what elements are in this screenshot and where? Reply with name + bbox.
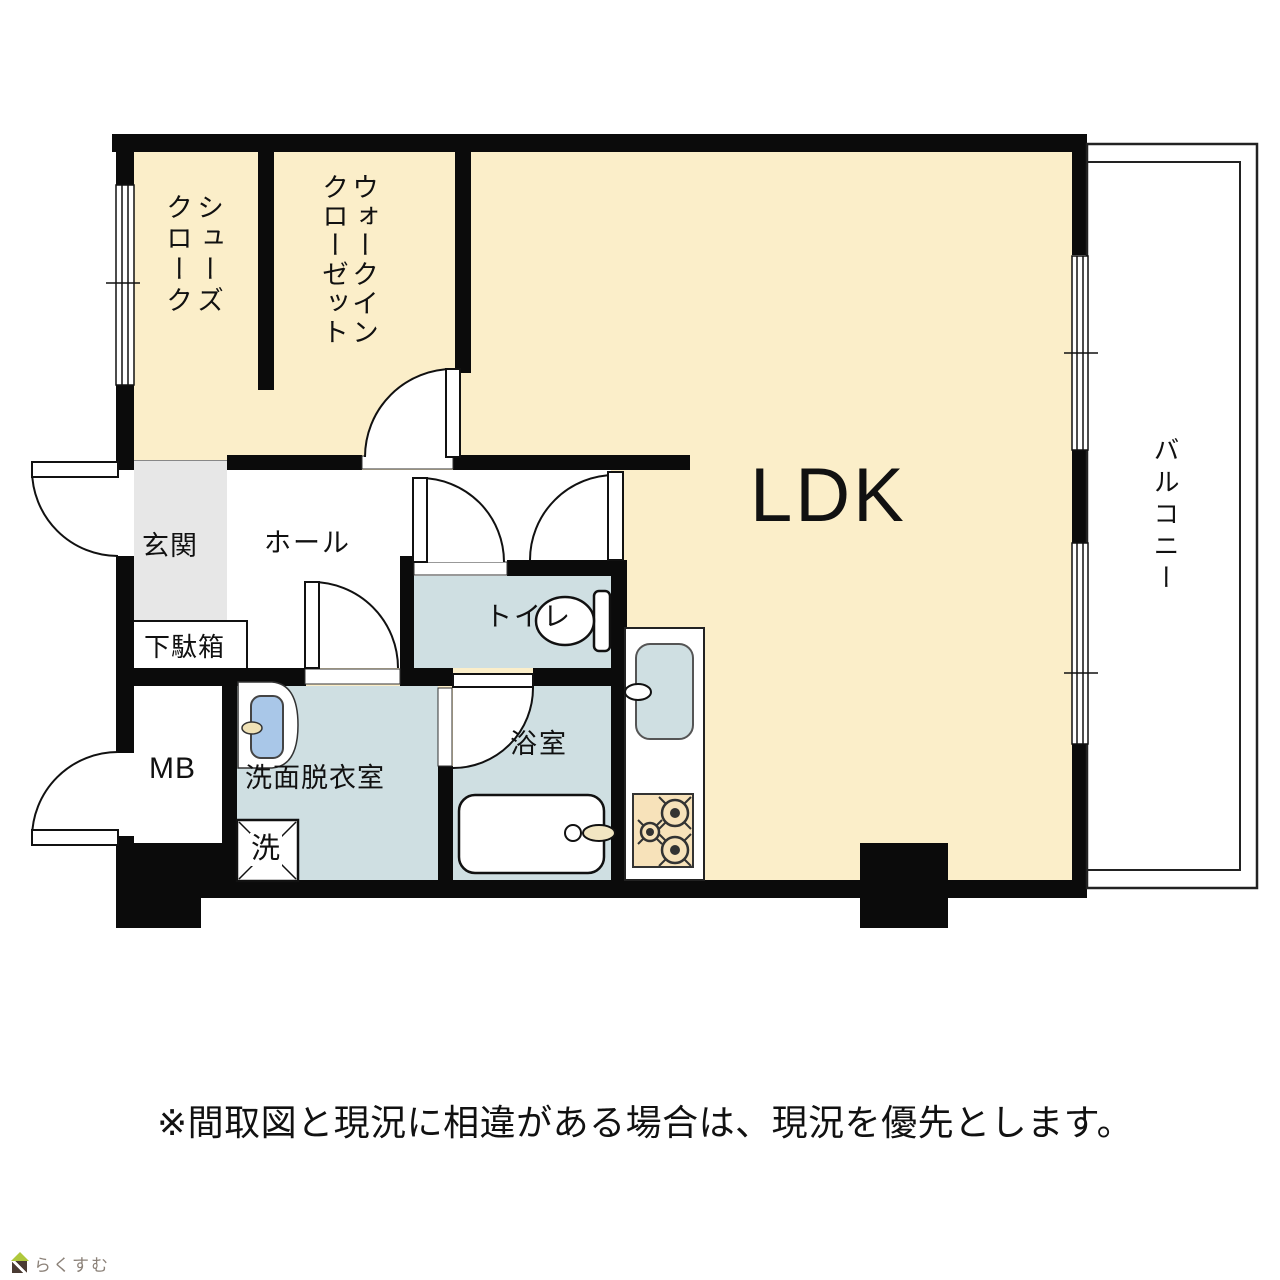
floor-plan: LDK シューズ クローク ウォークイン クローゼット バルコニー 玄関 ホール… <box>0 0 1280 1280</box>
disclaimer-text: ※間取図と現況に相違がある場合は、現況を優先とします。 <box>157 1094 1133 1146</box>
house-icon <box>10 1252 29 1274</box>
wall <box>116 556 134 753</box>
room-label-shoe-cabinet: 下駄箱 <box>144 633 225 663</box>
wall <box>438 766 453 880</box>
wall <box>507 560 611 576</box>
room-label-bathroom: 浴室 <box>510 729 568 760</box>
wall <box>1072 450 1087 543</box>
room-label-meter-box: MB <box>149 752 196 787</box>
room-label-washer: 洗 <box>250 833 282 866</box>
pillar <box>860 843 948 928</box>
site-logo: らくすむ <box>10 1252 110 1274</box>
room-label-shoes-closet: シューズ クローク <box>161 193 223 317</box>
wall <box>227 455 362 470</box>
room-label-toilet: トイレ <box>485 602 572 633</box>
wall <box>400 556 414 668</box>
wall <box>112 134 1087 152</box>
wall <box>400 668 453 686</box>
wall <box>116 385 134 470</box>
room-label-washroom: 洗面脱衣室 <box>245 763 385 794</box>
room-label-entrance: 玄関 <box>142 531 198 562</box>
room-label-ldk: LDK <box>750 452 907 539</box>
room-label-hall: ホール <box>264 528 351 559</box>
wall <box>258 152 274 390</box>
wall <box>611 560 627 880</box>
logo-text: らくすむ <box>34 1257 110 1274</box>
wall <box>453 455 690 470</box>
room-bathroom <box>453 686 611 880</box>
wall <box>1072 744 1087 898</box>
wall <box>1072 140 1087 255</box>
wall <box>116 134 134 185</box>
wall <box>116 668 306 686</box>
room-label-walk-in-closet: ウォークイン クローゼット <box>318 173 378 347</box>
wall <box>222 686 237 880</box>
wall <box>533 668 627 686</box>
room-label-balcony: バルコニー <box>1149 436 1180 596</box>
wall <box>455 152 471 373</box>
